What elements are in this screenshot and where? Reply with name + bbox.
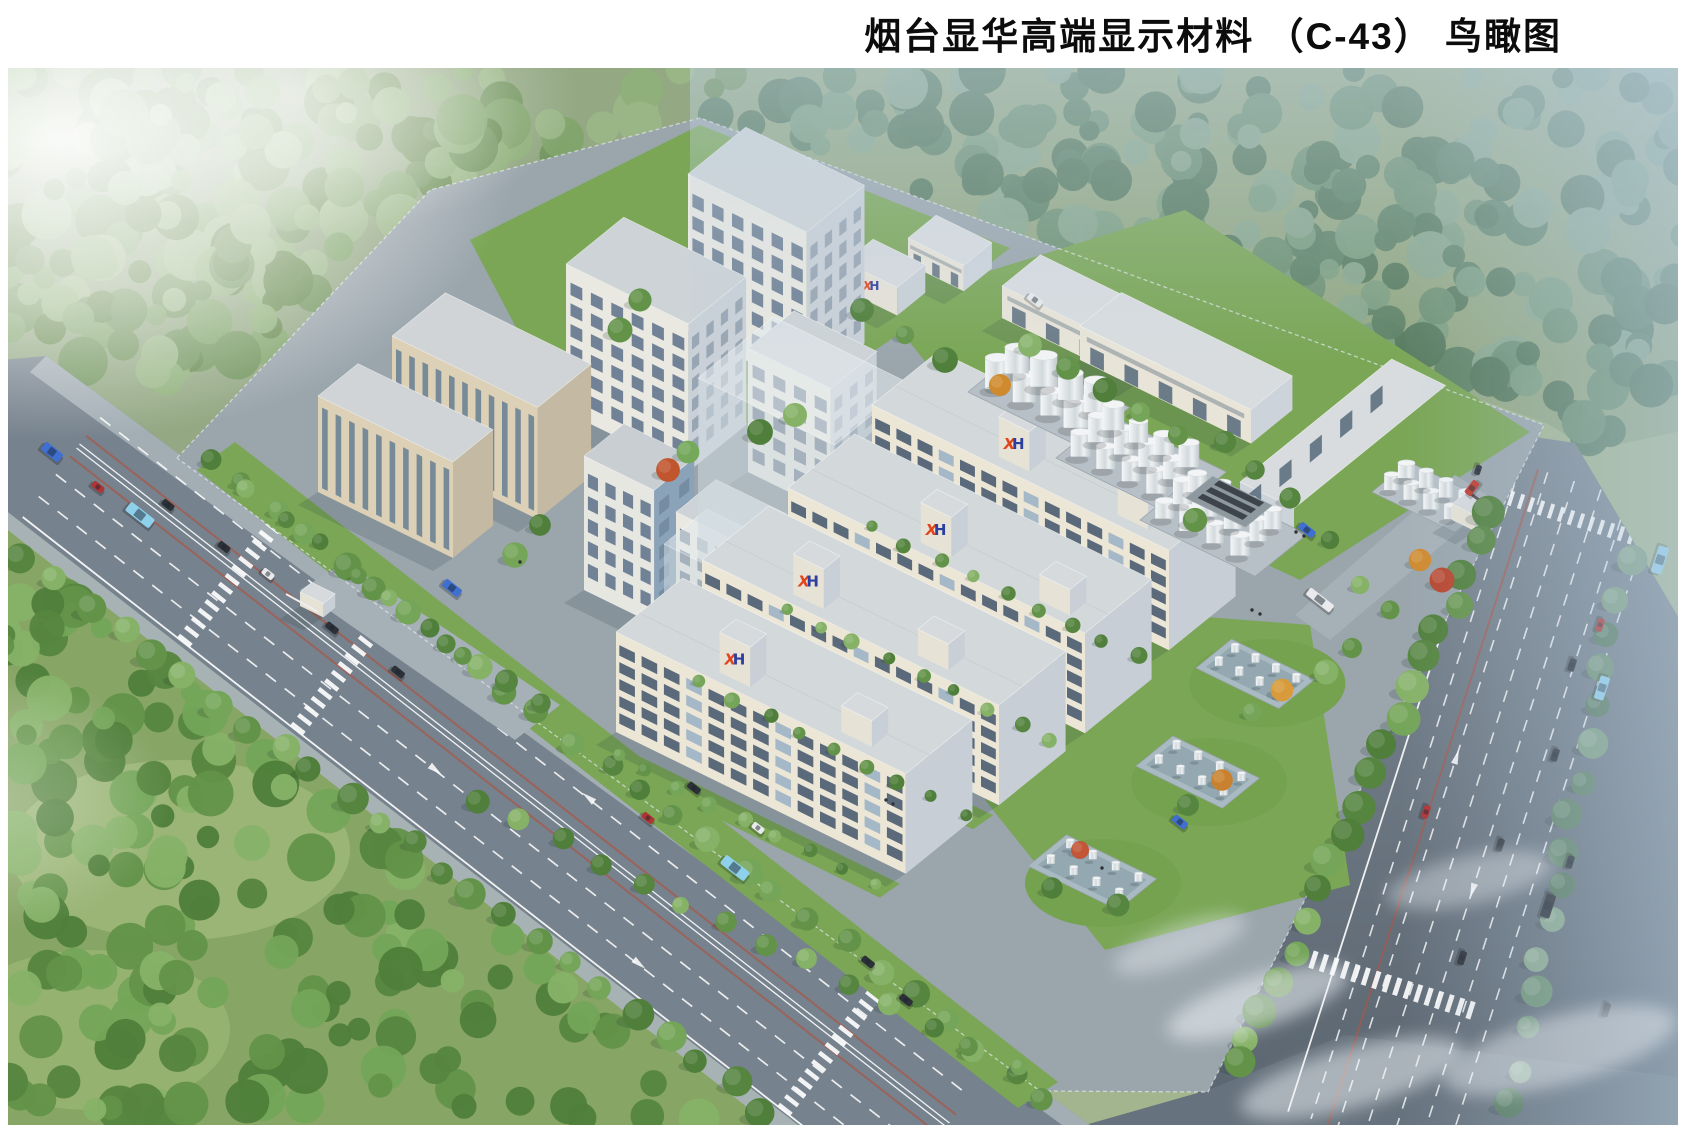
window bbox=[444, 467, 450, 550]
tree-highlight bbox=[43, 568, 56, 581]
xh-logo: XH bbox=[1003, 435, 1025, 453]
tree-highlight bbox=[1352, 577, 1362, 587]
tree bbox=[6, 970, 42, 1006]
tree bbox=[106, 1019, 146, 1059]
tree-highlight bbox=[351, 569, 360, 578]
tree-highlight bbox=[170, 664, 185, 679]
tree-highlight bbox=[673, 898, 682, 907]
tree-highlight bbox=[205, 693, 221, 709]
tree-highlight bbox=[397, 601, 411, 615]
tree-highlight bbox=[867, 521, 873, 527]
logo-h: H bbox=[934, 521, 947, 539]
tree-highlight bbox=[1072, 842, 1082, 852]
tree bbox=[179, 880, 220, 921]
tree-highlight bbox=[562, 734, 575, 747]
tank-top bbox=[1173, 740, 1181, 743]
tree-highlight bbox=[1066, 619, 1074, 627]
tank-top bbox=[1093, 877, 1101, 880]
tree-highlight bbox=[1345, 793, 1363, 811]
tank-top bbox=[1155, 497, 1174, 504]
pedestrian bbox=[1302, 534, 1305, 537]
tree-highlight bbox=[837, 864, 844, 871]
tree-highlight bbox=[693, 676, 700, 683]
tree-highlight bbox=[382, 591, 391, 600]
tree bbox=[122, 1083, 165, 1125]
tree bbox=[159, 1035, 196, 1072]
window bbox=[430, 460, 436, 543]
tree bbox=[640, 1070, 667, 1097]
page-margin bbox=[0, 68, 8, 1125]
rendering-canvas: XHXHXHXHXH bbox=[0, 68, 1686, 1125]
tree bbox=[197, 826, 219, 848]
tank-top bbox=[1135, 872, 1143, 875]
pedestrian bbox=[1294, 530, 1297, 533]
tank-top bbox=[1071, 428, 1091, 435]
tank-shadow bbox=[1218, 528, 1239, 536]
tree-highlight bbox=[238, 481, 248, 491]
tree-highlight bbox=[765, 710, 773, 718]
pedestrian bbox=[1100, 866, 1103, 869]
tree-highlight bbox=[1169, 426, 1180, 437]
tank-shadow bbox=[1172, 776, 1181, 779]
tree-highlight bbox=[685, 1051, 698, 1064]
tree-highlight bbox=[422, 620, 432, 630]
tree-highlight bbox=[1016, 718, 1025, 727]
tree-highlight bbox=[138, 642, 155, 659]
window bbox=[349, 421, 355, 504]
tree-highlight bbox=[1012, 1060, 1021, 1069]
tree-highlight bbox=[455, 648, 465, 658]
tree-highlight bbox=[1343, 639, 1354, 650]
tank-top bbox=[1384, 472, 1399, 477]
tree bbox=[368, 1074, 392, 1098]
tree-highlight bbox=[861, 761, 869, 769]
window bbox=[376, 434, 382, 517]
tree-highlight bbox=[785, 405, 798, 418]
tree-highlight bbox=[1213, 771, 1225, 783]
tree-highlight bbox=[297, 758, 311, 772]
tree-highlight bbox=[960, 1038, 971, 1049]
tank-shadow bbox=[1215, 797, 1224, 800]
tree-highlight bbox=[1382, 602, 1392, 612]
tank-shadow bbox=[1150, 765, 1159, 768]
tree-highlight bbox=[659, 1024, 676, 1041]
window bbox=[529, 414, 535, 511]
tank-top bbox=[1216, 761, 1224, 764]
tank-shadow bbox=[1225, 554, 1248, 562]
tree bbox=[326, 981, 351, 1006]
tree bbox=[287, 833, 335, 881]
tree-highlight bbox=[880, 994, 892, 1006]
tank-shadow bbox=[1088, 887, 1097, 890]
tree-highlight bbox=[275, 736, 290, 751]
tree-highlight bbox=[897, 540, 905, 548]
tree-highlight bbox=[845, 635, 854, 644]
tree-highlight bbox=[406, 832, 418, 844]
tank-top bbox=[1256, 676, 1264, 679]
tree-highlight bbox=[961, 810, 968, 817]
tank-shadow bbox=[1168, 751, 1177, 754]
tree-highlight bbox=[1368, 732, 1385, 749]
tree-highlight bbox=[371, 814, 383, 826]
tank-shadow bbox=[1084, 861, 1093, 864]
tank-shadow bbox=[1124, 442, 1146, 450]
xh-logo: XH bbox=[723, 651, 745, 669]
tree bbox=[234, 825, 270, 861]
tank-top bbox=[1188, 469, 1207, 476]
tree-highlight bbox=[457, 881, 474, 898]
tree-highlight bbox=[1357, 759, 1374, 776]
tree-highlight bbox=[497, 671, 510, 684]
tree-highlight bbox=[1132, 648, 1141, 657]
tank-top bbox=[1194, 750, 1202, 753]
tree bbox=[159, 960, 194, 995]
tree bbox=[46, 955, 82, 991]
tank-shadow bbox=[1194, 786, 1203, 789]
tank-top bbox=[1047, 854, 1055, 857]
tree-highlight bbox=[926, 1020, 937, 1031]
page-title: 烟台显华高端显示材料 （C-43） 鸟瞰图 bbox=[864, 6, 1562, 60]
tree-highlight bbox=[592, 856, 604, 868]
tree-highlight bbox=[1296, 910, 1311, 925]
tree-highlight bbox=[797, 909, 810, 922]
tank-shadow bbox=[1107, 872, 1116, 875]
tree-highlight bbox=[918, 670, 926, 678]
tree-highlight bbox=[816, 623, 822, 629]
tree-highlight bbox=[438, 636, 449, 647]
tank-shadow bbox=[1244, 541, 1264, 548]
tank-top bbox=[1089, 850, 1097, 853]
tree bbox=[148, 1003, 172, 1027]
tank-shadow bbox=[1251, 687, 1260, 690]
tank-shadow bbox=[1109, 453, 1131, 461]
tree-highlight bbox=[336, 555, 351, 570]
tree bbox=[441, 969, 465, 993]
tree-highlight bbox=[663, 807, 674, 818]
tree-highlight bbox=[1334, 821, 1352, 839]
tree bbox=[586, 111, 619, 144]
pedestrian bbox=[884, 798, 887, 801]
tree bbox=[347, 1018, 370, 1041]
tree-highlight bbox=[739, 813, 747, 821]
tree bbox=[188, 771, 234, 817]
tree-highlight bbox=[1316, 662, 1330, 676]
tree-highlight bbox=[981, 704, 989, 712]
tree-highlight bbox=[493, 904, 507, 918]
tree bbox=[420, 1053, 451, 1084]
tree-highlight bbox=[769, 831, 776, 838]
tree-highlight bbox=[1244, 704, 1254, 714]
tank-shadow bbox=[1247, 664, 1256, 667]
tree-highlight bbox=[761, 881, 773, 893]
tree-highlight bbox=[782, 605, 788, 611]
tree-highlight bbox=[828, 744, 835, 751]
tree-highlight bbox=[1185, 510, 1198, 523]
tree bbox=[82, 954, 118, 990]
tree-highlight bbox=[936, 554, 944, 562]
tree bbox=[567, 1001, 600, 1034]
tank-top bbox=[1115, 888, 1123, 891]
window bbox=[363, 427, 369, 510]
tank-shadow bbox=[1201, 543, 1221, 550]
tree-highlight bbox=[1043, 879, 1055, 891]
tree bbox=[323, 894, 354, 925]
tree bbox=[237, 879, 267, 909]
tree-highlight bbox=[639, 764, 646, 771]
tree bbox=[29, 610, 64, 645]
window bbox=[336, 414, 342, 497]
tank-top bbox=[1112, 861, 1120, 864]
tank-shadow bbox=[1065, 876, 1074, 879]
tree bbox=[249, 1034, 285, 1070]
tree bbox=[19, 1015, 62, 1058]
tree bbox=[197, 977, 228, 1008]
logo-h: H bbox=[1012, 435, 1025, 453]
tree-highlight bbox=[890, 776, 899, 785]
tank-top bbox=[1238, 772, 1246, 775]
tree-highlight bbox=[531, 516, 543, 528]
tree-highlight bbox=[794, 728, 801, 735]
tree-highlight bbox=[630, 290, 643, 303]
tank-top bbox=[1066, 839, 1074, 842]
tree-highlight bbox=[529, 930, 543, 944]
pedestrian bbox=[891, 802, 894, 805]
tree bbox=[506, 1087, 535, 1116]
tree bbox=[394, 899, 424, 929]
tank-top bbox=[1070, 865, 1078, 868]
tank-shadow bbox=[1150, 518, 1172, 526]
tree-highlight bbox=[696, 828, 710, 842]
tree-highlight bbox=[79, 596, 95, 612]
tree-highlight bbox=[678, 442, 691, 455]
tree bbox=[23, 1083, 56, 1116]
aerial-rendering: XHXHXHXHXH bbox=[0, 68, 1686, 1125]
tree-highlight bbox=[509, 810, 521, 822]
tree-highlight bbox=[625, 1001, 642, 1018]
tank-top bbox=[1215, 656, 1223, 659]
window bbox=[515, 408, 521, 505]
tank-top bbox=[1292, 673, 1300, 676]
tree-highlight bbox=[905, 982, 920, 997]
tank-top bbox=[1252, 653, 1260, 656]
tank-shadow bbox=[1231, 677, 1240, 680]
tree-highlight bbox=[631, 781, 642, 792]
title-bar: 烟台显华高端显示材料 （C-43） 鸟瞰图 bbox=[0, 0, 1686, 68]
window bbox=[322, 408, 328, 491]
tank-shadow bbox=[1190, 761, 1199, 764]
tank-top bbox=[1235, 666, 1243, 669]
tank-top bbox=[1198, 775, 1206, 778]
tank-shadow bbox=[1168, 503, 1190, 511]
tree-highlight bbox=[1043, 734, 1051, 742]
tree-highlight bbox=[725, 694, 734, 703]
tank-shadow bbox=[1210, 667, 1219, 670]
tree-highlight bbox=[991, 376, 1003, 388]
tree bbox=[282, 1048, 328, 1094]
tree-highlight bbox=[635, 875, 647, 887]
tree-highlight bbox=[1272, 680, 1284, 692]
tree-highlight bbox=[554, 829, 566, 841]
tree-highlight bbox=[747, 1100, 763, 1116]
pedestrian bbox=[1250, 608, 1253, 611]
tank-shadow bbox=[1130, 883, 1139, 886]
tree-highlight bbox=[1286, 943, 1300, 957]
tree-highlight bbox=[658, 460, 671, 473]
tank-shadow bbox=[1227, 654, 1236, 657]
tree-highlight bbox=[1108, 895, 1121, 908]
tree-highlight bbox=[1227, 1048, 1244, 1065]
tank-top bbox=[1231, 643, 1239, 646]
tank-shadow bbox=[1116, 480, 1138, 488]
tree-highlight bbox=[279, 513, 288, 522]
tank-top bbox=[1272, 663, 1280, 666]
tree-highlight bbox=[468, 791, 481, 804]
tree-highlight bbox=[884, 653, 891, 660]
tree-highlight bbox=[757, 936, 769, 948]
window bbox=[417, 454, 423, 537]
tree bbox=[452, 1094, 477, 1119]
tank-shadow bbox=[1065, 455, 1088, 463]
tree-highlight bbox=[840, 976, 851, 987]
tree-highlight bbox=[116, 619, 130, 633]
pedestrian bbox=[518, 560, 521, 563]
tree bbox=[164, 1082, 209, 1125]
tree bbox=[291, 989, 330, 1028]
window bbox=[390, 441, 396, 524]
tree-highlight bbox=[295, 524, 307, 536]
tree-highlight bbox=[1306, 877, 1321, 892]
tree-highlight bbox=[671, 782, 680, 791]
tree-highlight bbox=[968, 571, 975, 578]
tree-highlight bbox=[432, 864, 444, 876]
page-margin bbox=[1678, 68, 1686, 1125]
tree bbox=[491, 922, 524, 955]
tree-highlight bbox=[202, 451, 213, 462]
logo-h: H bbox=[806, 573, 819, 591]
tree-highlight bbox=[614, 750, 621, 757]
tree-highlight bbox=[724, 1069, 741, 1086]
tree-highlight bbox=[1179, 796, 1191, 808]
tree-highlight bbox=[504, 544, 518, 558]
haze-right bbox=[1400, 68, 1686, 1125]
tree bbox=[225, 1079, 269, 1123]
tree-highlight bbox=[235, 718, 250, 733]
tree-highlight bbox=[840, 930, 853, 943]
tree-highlight bbox=[340, 785, 357, 802]
tree-highlight bbox=[561, 953, 573, 965]
tree-highlight bbox=[589, 978, 602, 991]
tank-top bbox=[1177, 765, 1185, 768]
tree-highlight bbox=[313, 535, 322, 544]
tree-highlight bbox=[925, 791, 932, 798]
tank-shadow bbox=[1267, 674, 1276, 677]
window bbox=[502, 401, 508, 498]
tree bbox=[265, 935, 299, 969]
logo-h: H bbox=[733, 651, 746, 669]
pedestrian bbox=[1258, 612, 1261, 615]
tree-highlight bbox=[797, 950, 809, 962]
tree-highlight bbox=[1281, 489, 1293, 501]
tree-highlight bbox=[805, 845, 813, 853]
xh-logo: XH bbox=[925, 521, 947, 539]
tank-shadow bbox=[1379, 490, 1396, 496]
tank-shadow bbox=[1091, 468, 1113, 476]
tree-highlight bbox=[1002, 587, 1010, 595]
tree-highlight bbox=[7, 546, 24, 563]
tree-highlight bbox=[1132, 404, 1143, 415]
xh-logo: XH bbox=[797, 573, 819, 591]
tree-highlight bbox=[1322, 532, 1332, 542]
tank-shadow bbox=[1233, 782, 1242, 785]
tree-highlight bbox=[270, 501, 281, 512]
tank-shadow bbox=[1042, 865, 1051, 868]
tree bbox=[83, 1098, 106, 1121]
tree-highlight bbox=[1032, 1090, 1044, 1102]
tree-highlight bbox=[532, 695, 543, 706]
tree bbox=[548, 972, 579, 1003]
tree-highlight bbox=[609, 319, 623, 333]
tree-highlight bbox=[1247, 462, 1258, 473]
tree-highlight bbox=[1216, 433, 1228, 445]
tree-highlight bbox=[1095, 380, 1109, 394]
tree bbox=[460, 1002, 497, 1039]
tree bbox=[143, 702, 173, 732]
tree-highlight bbox=[871, 879, 877, 885]
tree-highlight bbox=[702, 798, 711, 807]
tree-highlight bbox=[1033, 605, 1041, 613]
window bbox=[403, 447, 409, 530]
tree-highlight bbox=[749, 421, 763, 435]
tree bbox=[488, 964, 513, 989]
tank-top bbox=[1155, 754, 1163, 757]
tree-highlight bbox=[1095, 635, 1102, 642]
tree-highlight bbox=[717, 913, 729, 925]
tree bbox=[177, 930, 208, 961]
tree bbox=[378, 947, 422, 991]
tree-highlight bbox=[1313, 846, 1331, 864]
tank-shadow bbox=[1259, 529, 1279, 536]
tree-highlight bbox=[949, 685, 955, 691]
